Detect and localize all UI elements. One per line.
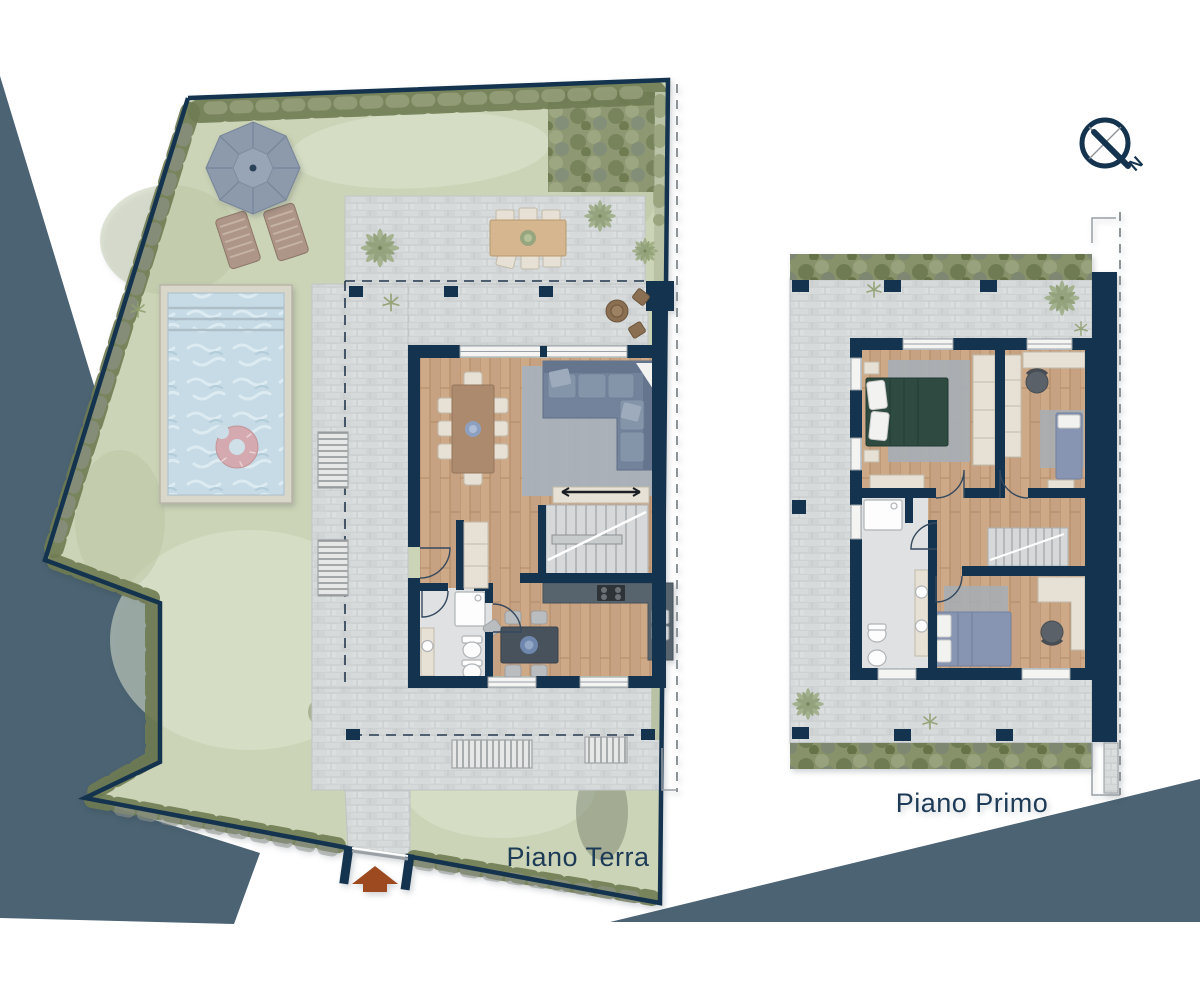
terrace-hedge-bottom: [790, 743, 1092, 769]
first-floor-plan: Piano Primo: [790, 212, 1120, 818]
staircase: [546, 505, 648, 578]
palm-icon: [1044, 280, 1079, 315]
compass-icon: N: [1082, 120, 1147, 175]
first-floor-label: Piano Primo: [896, 788, 1049, 818]
terrace-hedge-top: [790, 254, 1092, 280]
gate-path-paving: [345, 790, 410, 855]
neighbor-outline-gf: [662, 748, 677, 790]
outdoor-dining-set: [490, 208, 566, 269]
palm-icon: [792, 688, 824, 720]
pool-donut-float: [215, 425, 258, 468]
ground-floor-house: [408, 310, 673, 688]
palm-icon: [361, 229, 400, 268]
ground-floor-plan: Piano Terra: [45, 80, 697, 903]
palm-icon: [632, 238, 658, 264]
floorplan-canvas: Piano Terra: [0, 0, 1200, 1000]
ground-floor-label: Piano Terra: [506, 842, 650, 872]
floorplan-page: Piano Terra: [0, 0, 1200, 1000]
umbrella-icon: [206, 122, 300, 214]
neighbor-paving-strip: [1104, 743, 1118, 793]
grass-tuft: [683, 654, 697, 669]
first-floor-house: [850, 338, 1095, 680]
hall-closet: [464, 522, 488, 588]
compass-north-letter: N: [1125, 153, 1147, 175]
entrance-arrow-icon: [352, 866, 398, 892]
office-chair: [1041, 621, 1063, 644]
party-wall-band: [1092, 272, 1117, 742]
staircase-first-floor: [988, 528, 1068, 566]
office-chair: [1026, 370, 1048, 393]
pool: [160, 285, 292, 503]
tv-sideboard: [553, 487, 649, 503]
palm-icon: [584, 200, 616, 232]
